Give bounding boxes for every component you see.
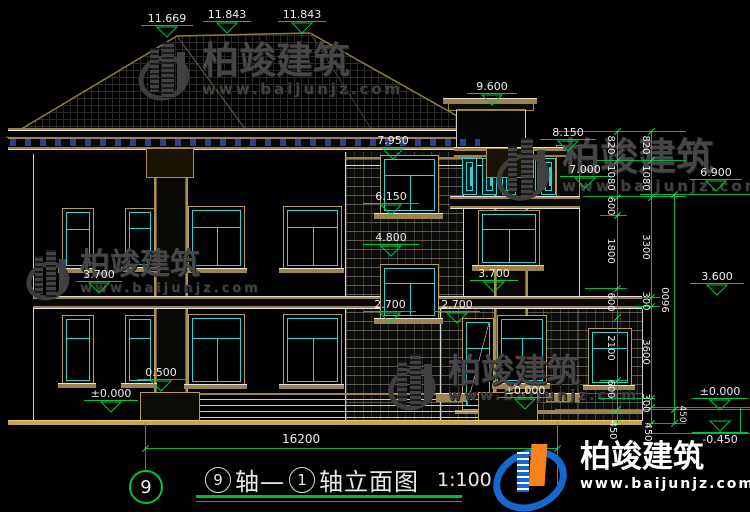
dim-value: 450	[675, 392, 687, 436]
brand-site: www.baijunjz.com	[580, 476, 750, 492]
dim-value: 3300	[639, 225, 651, 269]
drawing-title: 9 轴— 1 轴立面图 1:100	[205, 462, 492, 497]
elevation-mark: 3.600	[690, 270, 744, 296]
elevation-mark: 2.700	[434, 298, 480, 324]
window	[62, 208, 94, 270]
dim-value: 2100	[604, 326, 616, 370]
dim-value: 600	[604, 184, 616, 228]
total-width-dim: 16200	[282, 432, 320, 446]
window	[125, 208, 155, 269]
brand-logo-icon	[490, 440, 570, 506]
dim-value: 1800	[604, 229, 616, 273]
elevation-mark: ±0.000	[84, 387, 138, 413]
brand-logo: 柏竣建筑 www.baijunjz.com	[490, 440, 750, 506]
elevation-mark: ±0.000	[498, 384, 552, 410]
column-shaft-left	[154, 176, 188, 392]
elevation-mark: 3.700	[470, 267, 518, 293]
window	[283, 314, 342, 386]
dim-value: 1080	[639, 156, 651, 200]
elevation-mark: 11.669	[141, 12, 193, 38]
elevation-mark: ±0.000	[692, 385, 748, 411]
wing-window-lower	[497, 315, 547, 385]
title-bubble-left: 9	[205, 467, 231, 493]
cad-elevation-drawing: 柏竣建筑 www.baijunjz.com 柏竣建筑 www.baijunjz.…	[0, 0, 750, 512]
elevation-mark: 6.150	[363, 190, 419, 216]
column-capital-left	[146, 148, 194, 178]
balcony-floor-slab	[450, 196, 580, 209]
wing-window-upper	[478, 210, 540, 267]
dim-value: 3600	[639, 330, 651, 374]
title-bubble-right: 1	[289, 467, 315, 493]
axis-bubble-9: 9	[129, 470, 163, 504]
elevation-mark: 11.843	[203, 8, 251, 34]
elevation-mark: 3.700	[76, 268, 122, 294]
pilaster-cap-left	[436, 393, 466, 402]
title-underline-2	[196, 501, 462, 502]
elevation-mark: 4.800	[363, 231, 419, 257]
elevation-mark: 11.843	[278, 8, 326, 34]
window	[188, 206, 245, 270]
elevation-mark: 8.150	[540, 126, 596, 152]
elevation-mark: 0.500	[137, 366, 185, 392]
floor-slab-band	[33, 296, 642, 309]
title-underline	[196, 495, 462, 498]
dim-value: 9600	[661, 278, 673, 322]
ground-line	[8, 420, 642, 425]
dim-value: 600	[604, 367, 616, 411]
drawing-scale: 1:100	[437, 469, 492, 491]
window	[62, 315, 94, 385]
brand-name: 柏竣建筑	[580, 440, 750, 476]
elevation-mark: 9.600	[467, 80, 517, 106]
elevation-mark: 7.950	[364, 134, 422, 160]
elevation-mark: 7.000	[560, 163, 610, 189]
column-pedestal-left	[140, 392, 200, 423]
elevation-mark: 2.700	[364, 298, 416, 324]
dim-value: 300	[639, 279, 651, 323]
window	[283, 206, 342, 270]
elevation-mark: 6.900	[690, 166, 742, 192]
column-capital-right	[486, 148, 534, 178]
dim-value: 600	[604, 280, 616, 324]
window	[188, 314, 245, 386]
